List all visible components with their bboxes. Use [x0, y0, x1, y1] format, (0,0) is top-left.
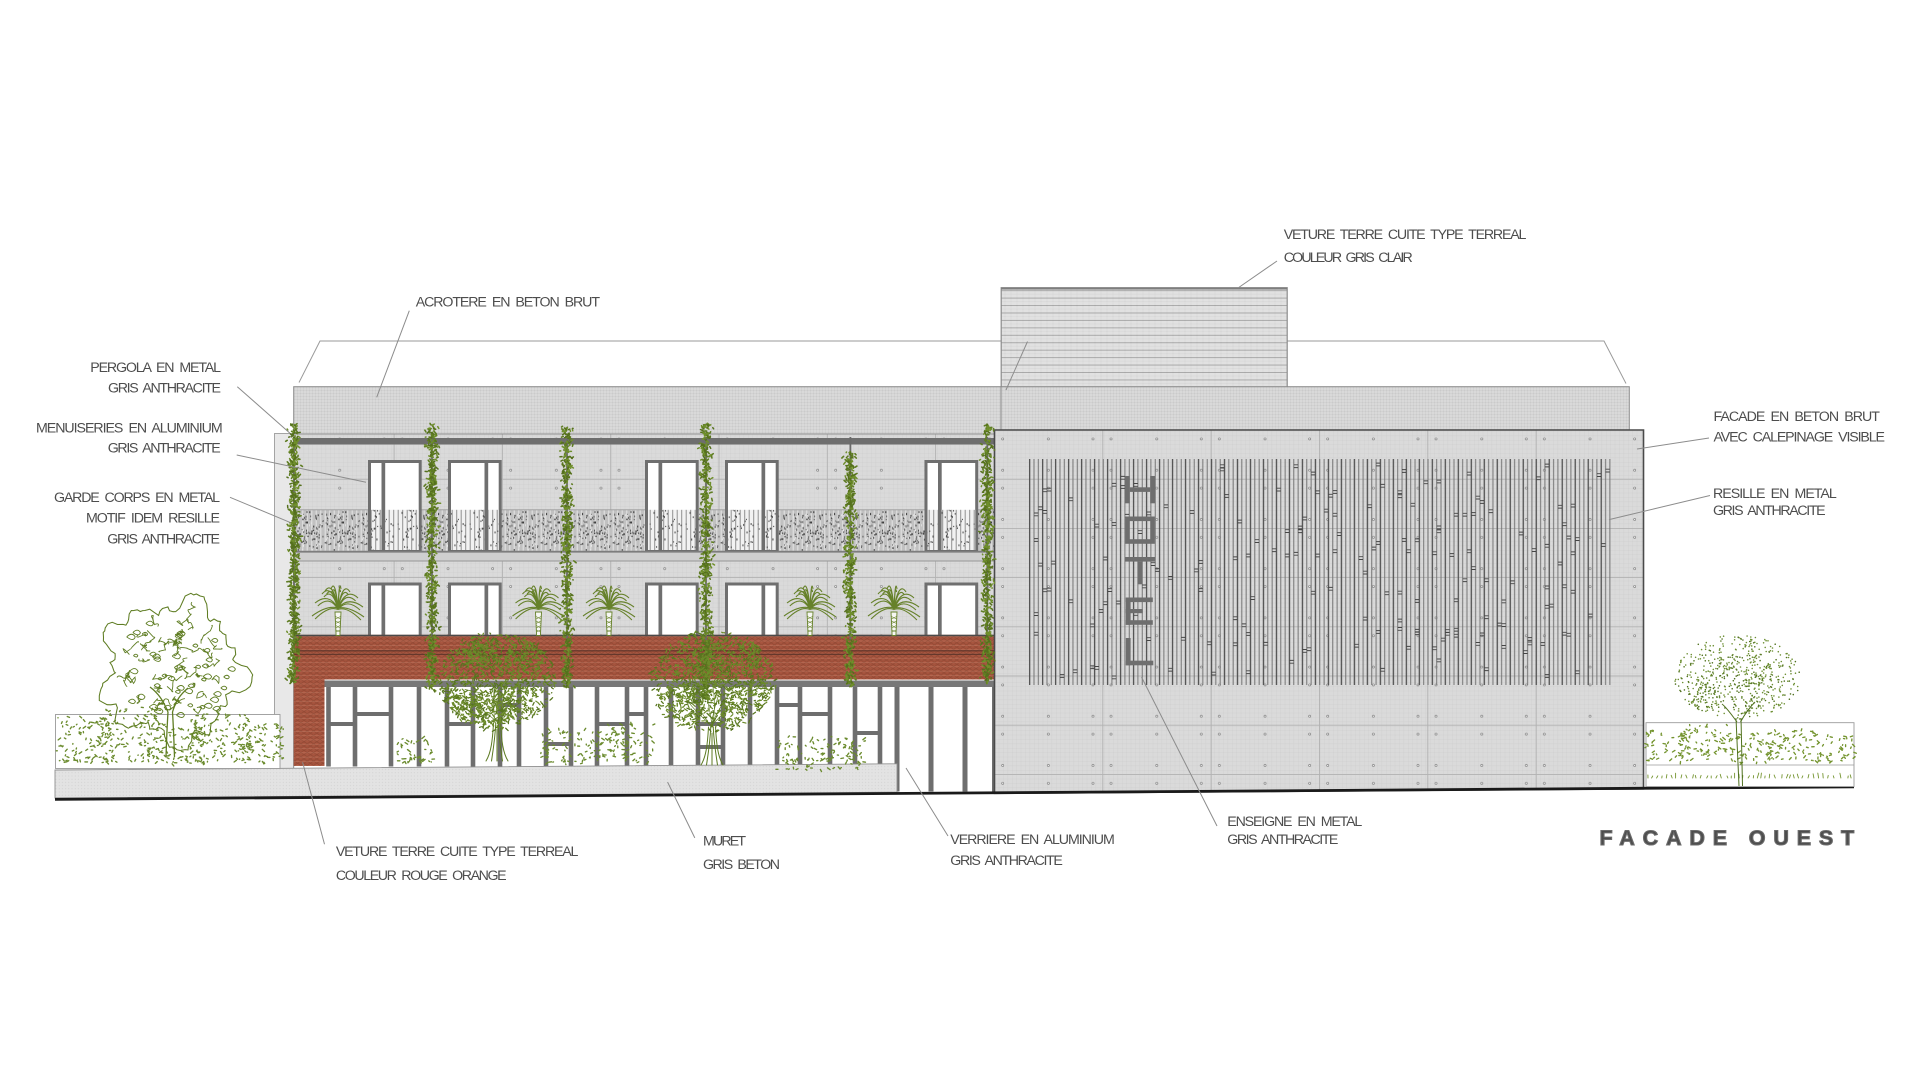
svg-text:MOTIF IDEM RESILLE: MOTIF IDEM RESILLE: [86, 511, 220, 527]
svg-text:PERGOLA EN METAL: PERGOLA EN METAL: [90, 360, 221, 376]
svg-text:RESILLE EN METAL: RESILLE EN METAL: [1713, 486, 1837, 502]
svg-text:GRIS ANTHRACITE: GRIS ANTHRACITE: [950, 853, 1063, 869]
svg-text:ACROTERE EN BETON BRUT: ACROTERE EN BETON BRUT: [416, 295, 601, 311]
svg-text:GRIS ANTHRACITE: GRIS ANTHRACITE: [1227, 832, 1338, 848]
svg-text:VETURE TERRE CUITE TYPE TERREA: VETURE TERRE CUITE TYPE TERREAL: [1284, 227, 1527, 243]
svg-text:MURET: MURET: [703, 834, 746, 850]
svg-text:GARDE CORPS EN METAL: GARDE CORPS EN METAL: [54, 490, 220, 506]
svg-text:GRIS BETON: GRIS BETON: [703, 857, 780, 873]
svg-text:COULEUR GRIS CLAIR: COULEUR GRIS CLAIR: [1284, 250, 1413, 266]
svg-text:GRIS ANTHRACITE: GRIS ANTHRACITE: [108, 441, 221, 457]
svg-text:MENUISERIES EN ALUMINIUM: MENUISERIES EN ALUMINIUM: [36, 420, 223, 436]
svg-text:VERRIERE EN ALUMINIUM: VERRIERE EN ALUMINIUM: [950, 832, 1115, 848]
svg-text:AVEC CALEPINAGE VISIBLE: AVEC CALEPINAGE VISIBLE: [1714, 430, 1886, 446]
svg-text:ENSEIGNE EN METAL: ENSEIGNE EN METAL: [1227, 814, 1362, 830]
svg-text:GRIS ANTHRACITE: GRIS ANTHRACITE: [108, 381, 221, 397]
svg-text:FACADE EN BETON BRUT: FACADE EN BETON BRUT: [1714, 409, 1881, 425]
svg-text:VETURE TERRE CUITE TYPE TERREA: VETURE TERRE CUITE TYPE TERREAL: [336, 844, 579, 860]
svg-text:COULEUR ROUGE ORANGE: COULEUR ROUGE ORANGE: [336, 868, 507, 884]
svg-text:GRIS ANTHRACITE: GRIS ANTHRACITE: [1713, 503, 1826, 519]
svg-text:GRIS ANTHRACITE: GRIS ANTHRACITE: [107, 531, 220, 547]
